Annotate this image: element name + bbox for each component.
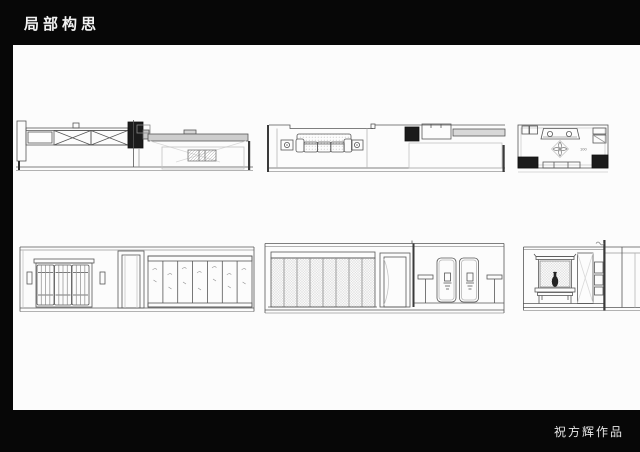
elevation-media-wall xyxy=(14,115,256,187)
elevation-display-niche xyxy=(523,240,640,318)
elevation-wardrobe-partition xyxy=(14,242,256,318)
page-title: 局部构思 xyxy=(24,13,100,34)
presentation-board: 局部构思 xyxy=(0,0,640,452)
ceiling-dim-label: 100 xyxy=(580,147,587,152)
ceiling-plan-detail: 100 xyxy=(516,113,618,187)
elevation-sofa-wall xyxy=(263,115,508,187)
elevation-curtain-wall xyxy=(263,240,506,318)
artist-signature: 祝方辉作品 xyxy=(554,423,624,440)
drawing-sheet: 100 xyxy=(13,45,640,410)
